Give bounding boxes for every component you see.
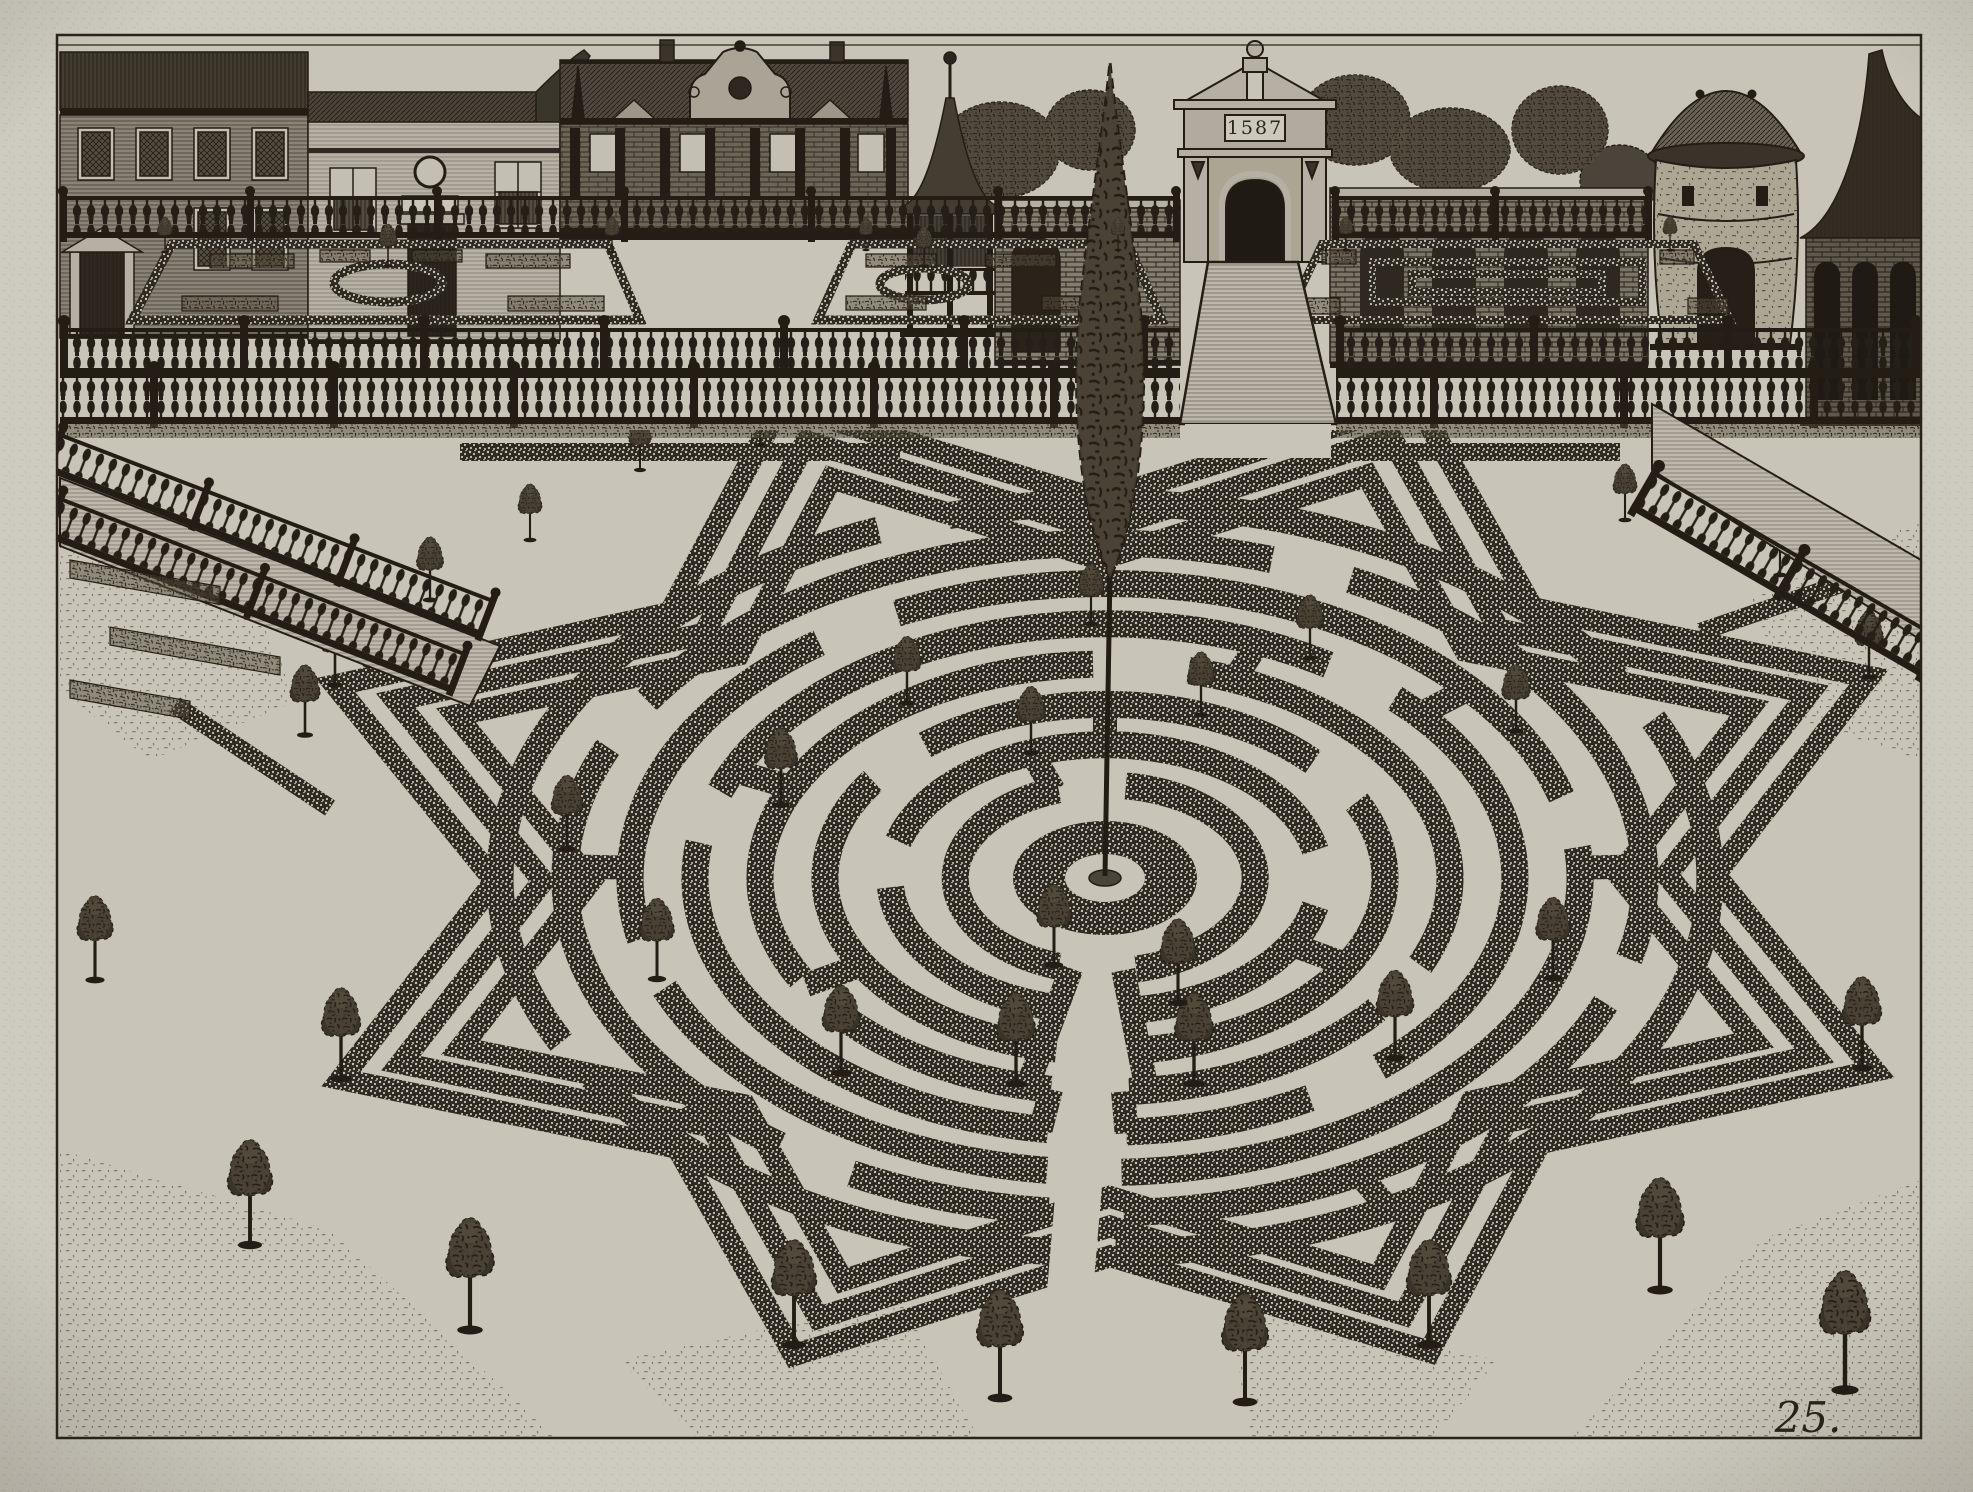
engraving-page: 1587 [0,0,1973,1492]
plate-number: 25. [1774,1393,1842,1442]
engraving-canvas: 1587 [0,0,1973,1492]
vignette [0,0,1973,1492]
